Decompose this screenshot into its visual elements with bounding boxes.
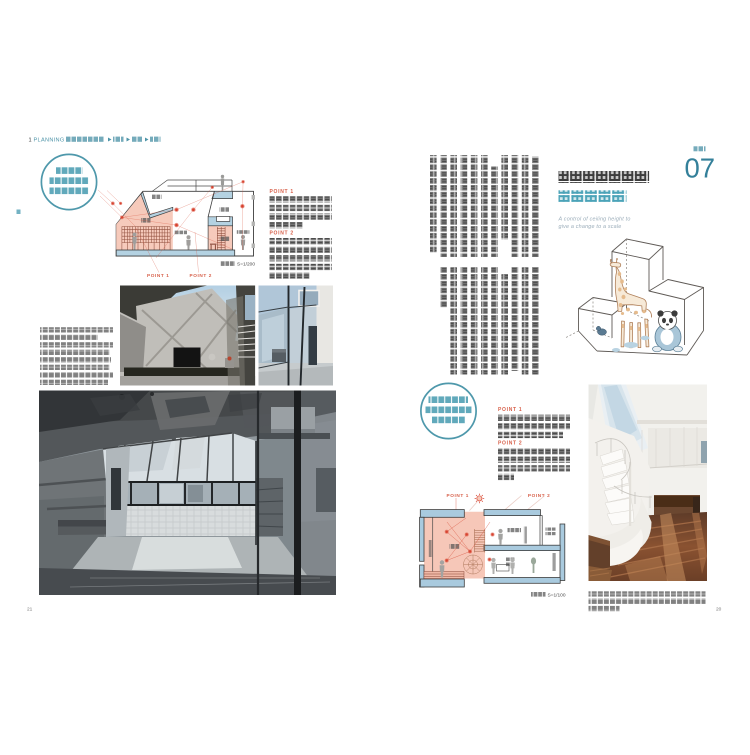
svg-text:A control of ceiling height to: A control of ceiling height to — [558, 217, 631, 223]
svg-text:POINT 2: POINT 2 — [190, 273, 212, 278]
svg-text:20: 20 — [716, 607, 722, 613]
svg-text:POINT 1: POINT 1 — [270, 189, 294, 195]
svg-text:POINT 1: POINT 1 — [147, 273, 169, 278]
svg-text:21: 21 — [27, 607, 33, 613]
svg-text:S=1/100: S=1/100 — [548, 592, 566, 598]
svg-text:1: 1 — [29, 138, 32, 144]
svg-text:PLANNING: PLANNING — [34, 138, 65, 144]
svg-text:give a change to a scale: give a change to a scale — [559, 224, 622, 230]
svg-text:07: 07 — [685, 153, 716, 184]
svg-text:S=1/200: S=1/200 — [237, 262, 255, 268]
svg-text:POINT 1: POINT 1 — [498, 407, 522, 413]
svg-text:POINT 2: POINT 2 — [528, 493, 550, 498]
svg-text:POINT 1: POINT 1 — [447, 493, 469, 498]
svg-text:POINT 2: POINT 2 — [498, 441, 522, 447]
svg-text:POINT 2: POINT 2 — [270, 231, 294, 237]
